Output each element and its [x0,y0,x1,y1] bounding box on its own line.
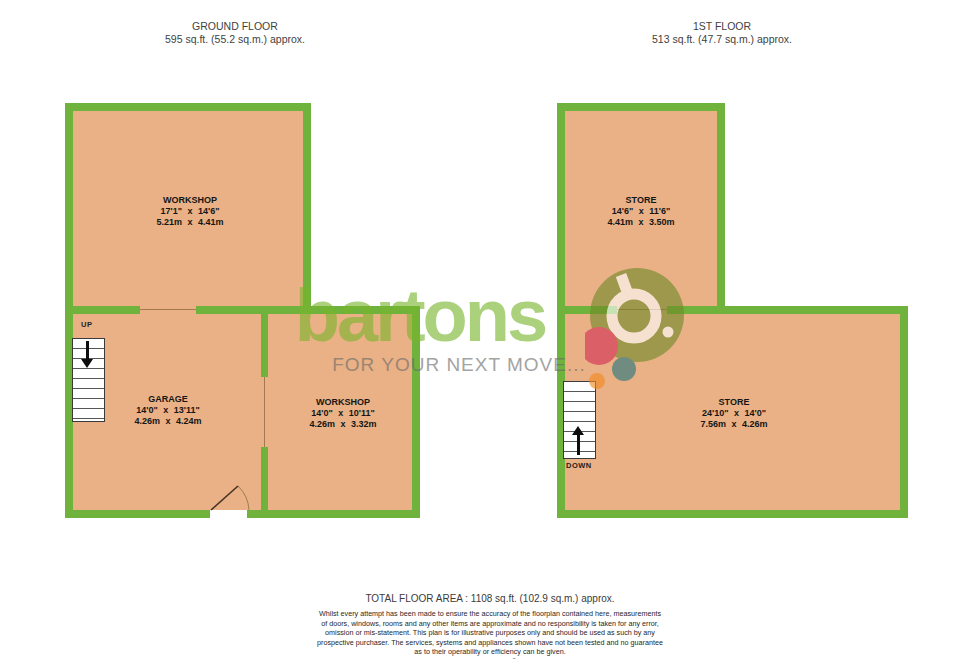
wall [261,314,268,377]
disclaimer-line: omission or mis-statement. This plan is … [290,628,690,638]
wall [261,447,268,510]
stairs-down-label: DOWN [566,461,592,470]
room-label-garage: GARAGE 14'0" x 13'11" 4.26m x 4.24m [134,394,201,427]
floorplan-page: GROUND FLOOR 595 sq.ft. (55.2 sq.m.) app… [0,0,980,659]
wall [900,306,908,518]
disclaimer: Whilst every attempt has been made to en… [290,609,690,659]
wall [717,103,725,314]
wall [65,510,210,518]
ground-floor-area: 595 sq.ft. (55.2 sq.m.) approx. [65,33,405,46]
room-label-store-2: STORE 24'10" x 14'0" 7.56m x 4.26m [700,397,767,430]
disclaimer-line: of doors, windows, rooms and any other i… [290,619,690,629]
first-floor-title: 1ST FLOOR [557,20,887,33]
wall [196,306,420,314]
wall [412,306,420,518]
door-opening [264,377,265,447]
first-floor-header: 1ST FLOOR 513 sq.ft. (47.7 sq.m.) approx… [557,20,887,46]
wall [65,103,311,111]
room-label-workshop-1: WORKSHOP 17'1" x 14'6" 5.21m x 4.41m [156,195,223,228]
ground-floor-header: GROUND FLOOR 595 sq.ft. (55.2 sq.m.) app… [65,20,405,46]
wall [557,103,725,111]
wall [65,306,140,314]
disclaimer-line: prospective purchaser. The services, sys… [290,638,690,648]
wall [247,510,420,518]
first-floor-area: 513 sq.ft. (47.7 sq.m.) approx. [557,33,887,46]
down-arrow-icon [572,426,585,455]
wall [557,510,908,518]
disclaimer-line: Whilst every attempt has been made to en… [290,609,690,619]
room-label-store-1: STORE 14'6" x 11'6" 4.41m x 3.50m [607,195,674,228]
stairs-up-label: UP [81,320,92,329]
disclaimer-line: as to their operability or efficiency ca… [290,647,690,657]
wall [303,103,311,314]
garage-door-arc [208,483,250,511]
ground-floor-title: GROUND FLOOR [65,20,405,33]
room-label-workshop-2: WORKSHOP 14'0" x 10'11" 4.26m x 3.32m [309,397,376,430]
wall [667,306,908,314]
up-arrow-icon [81,341,94,368]
door-opening [617,309,667,310]
wall [557,306,617,314]
door-opening [140,309,196,310]
total-floor-area: TOTAL FLOOR AREA : 1108 sq.ft. (102.9 sq… [0,593,980,604]
